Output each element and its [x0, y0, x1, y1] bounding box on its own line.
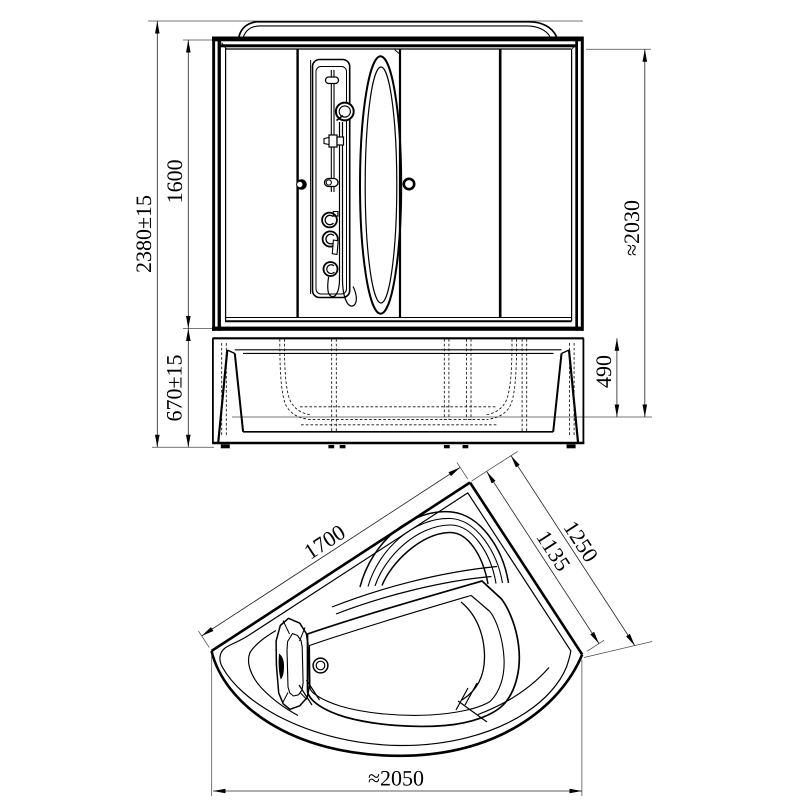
svg-text:≈2030: ≈2030: [619, 200, 644, 256]
svg-text:1600: 1600: [162, 159, 187, 203]
svg-text:670±15: 670±15: [162, 354, 187, 421]
svg-text:1700: 1700: [299, 519, 350, 564]
svg-text:2380±15: 2380±15: [131, 195, 156, 273]
svg-text:≈2050: ≈2050: [368, 766, 424, 791]
svg-text:490: 490: [591, 355, 616, 388]
